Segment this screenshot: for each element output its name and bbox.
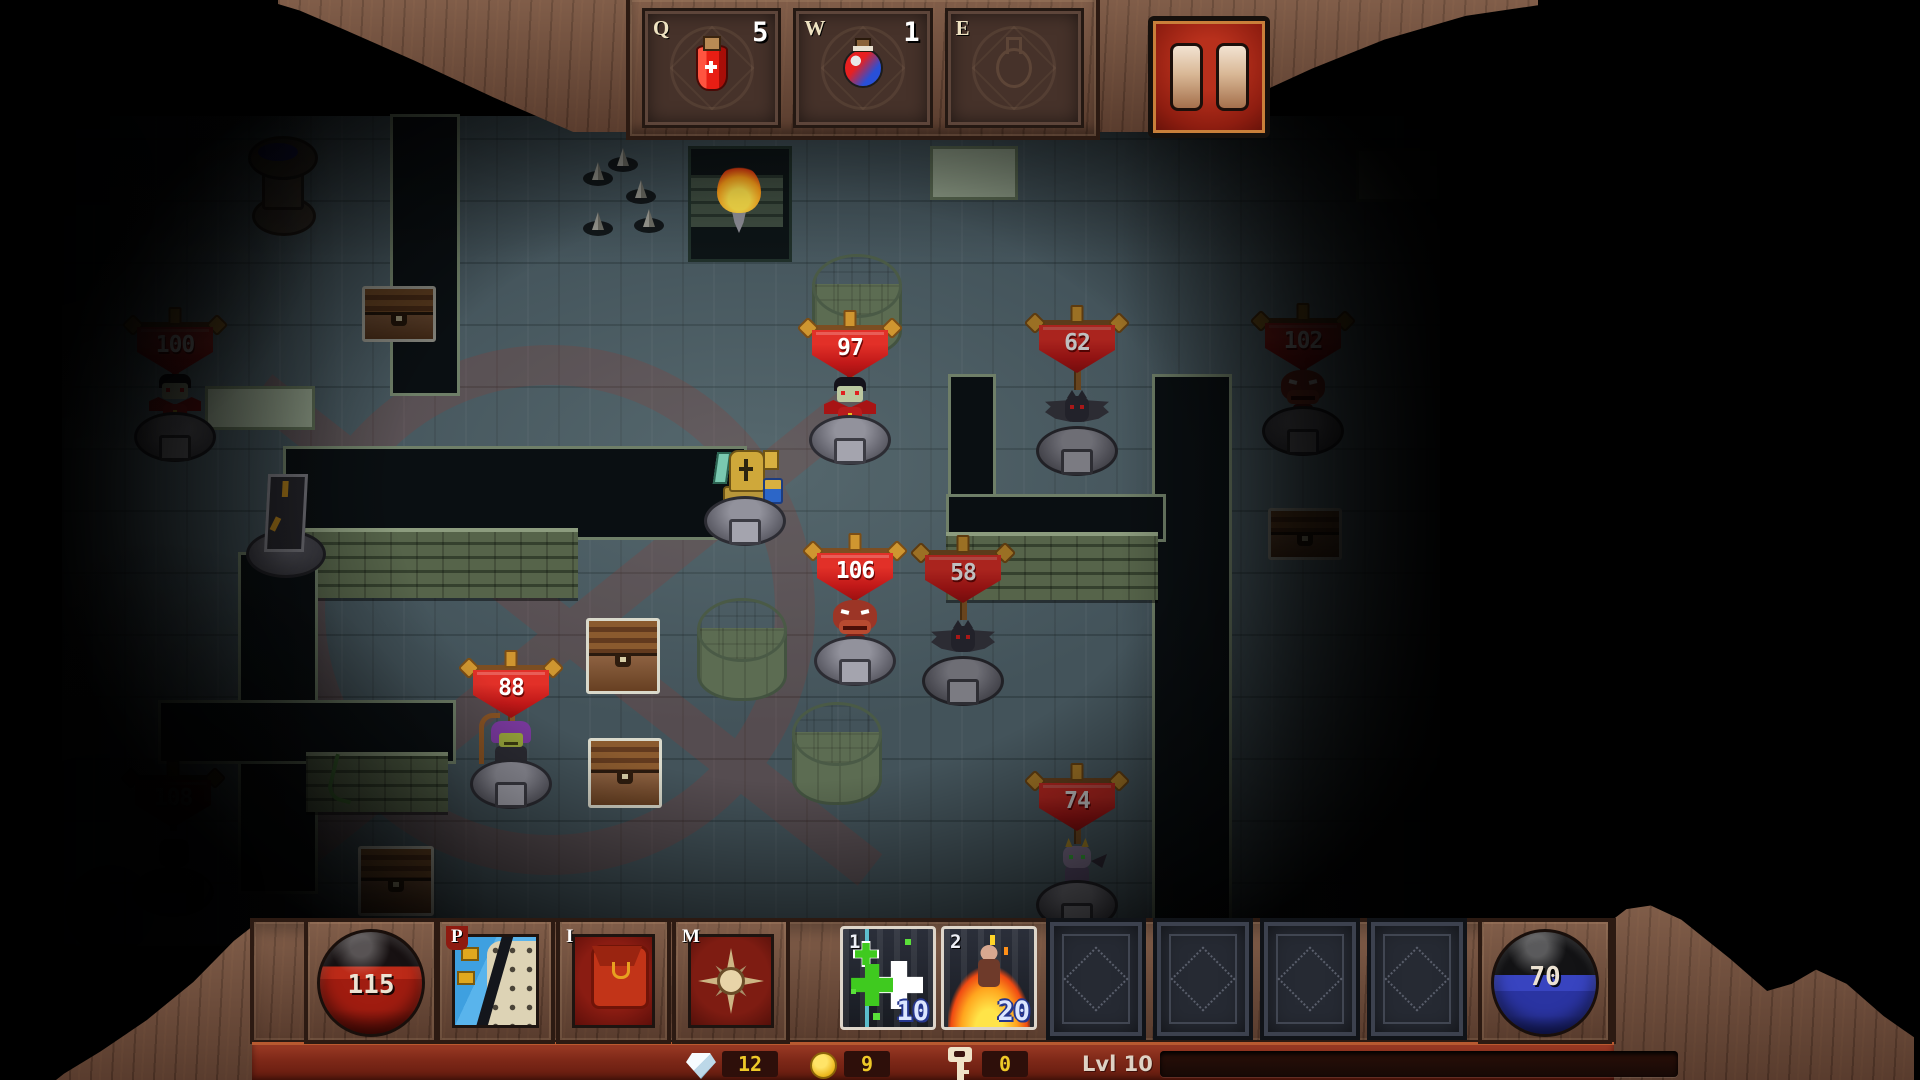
enemy-hp: 97: [812, 335, 888, 361]
hp-banner: 108: [128, 765, 218, 825]
wall-trench: [1152, 374, 1232, 946]
enemy-hp: 58: [925, 560, 1001, 586]
map-button[interactable]: M: [672, 918, 790, 1044]
empty-flask-icon: [996, 48, 1032, 88]
hp-banner: 100: [130, 312, 220, 372]
spike-trap: [634, 207, 664, 233]
compass-icon: [688, 934, 774, 1028]
spike-trap: [583, 210, 613, 236]
enemy-pedestal: [1036, 426, 1118, 476]
enemy-hp: 62: [1039, 330, 1115, 356]
enemy-hp: 106: [817, 558, 893, 584]
hp-banner: 62: [1032, 310, 1122, 370]
mana-value: 70: [1494, 962, 1596, 992]
coin-count: 9: [844, 1051, 890, 1077]
treasure-chest[interactable]: [362, 286, 436, 342]
inventory-button[interactable]: I: [556, 918, 671, 1044]
hp-banner: 74: [1032, 768, 1122, 828]
inventory-bag-icon: [572, 934, 655, 1028]
hotkey-label: 1: [849, 931, 860, 953]
treasure-chest[interactable]: [586, 618, 660, 694]
mana-cost: 20: [997, 996, 1030, 1027]
empty-card-slot[interactable]: [1367, 918, 1467, 1040]
enemy-hp: 108: [135, 785, 211, 811]
health-orb-frame: 115: [304, 918, 438, 1044]
treasure-chest[interactable]: [358, 846, 434, 916]
rainbow-potion-icon: [843, 48, 883, 88]
enemy-hp: 100: [137, 332, 213, 358]
enemy-bat[interactable]: 58: [918, 540, 1008, 706]
enemy-pedestal: [470, 759, 552, 809]
mana-cost: 10: [896, 996, 929, 1027]
enemy-pedestal: [132, 867, 214, 917]
spell-card-immolation[interactable]: 2 20: [941, 926, 1037, 1030]
hp-banner: 106: [810, 538, 900, 598]
enemy-demon[interactable]: 106: [810, 538, 900, 686]
wall-trench: [283, 446, 747, 540]
empty-card-slot[interactable]: [1046, 918, 1146, 1040]
mana-orb: 70: [1491, 929, 1599, 1037]
treasure-chest[interactable]: [1268, 508, 1342, 560]
obelisk: [246, 474, 324, 578]
enemy-hp: 102: [1265, 328, 1341, 354]
wall-cap: [1356, 148, 1442, 202]
resource-strip: 12 9 0 Lvl 10: [252, 1042, 1614, 1080]
item-count: 5: [752, 17, 768, 48]
enemy-pedestal: [809, 415, 891, 465]
hotkey-label: E: [956, 16, 970, 41]
gem-count: 12: [722, 1051, 778, 1077]
spike-trap: [626, 178, 656, 204]
gem-icon: [686, 1053, 716, 1079]
enemy-pedestal: [814, 636, 896, 686]
stone-pillar: [792, 702, 882, 808]
hp-banner: 102: [1258, 308, 1348, 368]
torch-alcove: [688, 146, 792, 262]
coin-icon: [810, 1052, 837, 1079]
hp-banner: 97: [805, 315, 895, 375]
enemy-bat[interactable]: 62: [1032, 310, 1122, 476]
hotkey-label: 2: [950, 931, 961, 953]
enemy-pedestal: [134, 412, 216, 462]
enemy-imp[interactable]: 74: [1032, 768, 1122, 930]
enemy-goblin-shaman[interactable]: 88: [466, 655, 556, 809]
item-count: 1: [903, 17, 919, 48]
spike-trap: [608, 146, 638, 172]
consumable-slot-e[interactable]: E: [945, 8, 1084, 128]
xp-progress-bar: [1160, 1051, 1678, 1077]
hotkey-label: Q: [653, 16, 669, 41]
brick-wall: [286, 528, 578, 598]
spell-card-heal[interactable]: 1 10: [840, 926, 936, 1030]
consumable-slot-q[interactable]: Q 5: [642, 8, 781, 128]
enemy-hidden[interactable]: 108: [128, 765, 218, 917]
fountain: [248, 136, 314, 236]
consumable-slot-w[interactable]: W 1: [793, 8, 932, 128]
health-value: 115: [320, 970, 422, 1000]
player-pedestal: [704, 496, 786, 546]
empty-card-slot[interactable]: [1153, 918, 1253, 1040]
key-count: 0: [982, 1051, 1028, 1077]
enemy-pedestal: [1262, 406, 1344, 456]
enemy-pedestal: [922, 656, 1004, 706]
brick-wall: [306, 752, 448, 812]
enemy-hp: 88: [473, 675, 549, 701]
pause-icon: [1170, 43, 1203, 111]
hotkey-label: W: [804, 16, 825, 41]
health-potion-icon: [696, 45, 728, 91]
enemy-hp: 74: [1039, 788, 1115, 814]
wall-cap: [930, 146, 1018, 200]
pause-button[interactable]: [1148, 16, 1270, 138]
hp-banner: 58: [918, 540, 1008, 600]
mana-orb-frame: 70: [1478, 918, 1612, 1044]
empty-card-slot[interactable]: [1260, 918, 1360, 1040]
pause-icon: [1216, 43, 1249, 111]
player-knight: [700, 452, 790, 546]
consumable-bar: Q 5 W 1 E: [626, 0, 1100, 140]
hotkey-label: P: [446, 926, 468, 950]
enemy-vampire[interactable]: 100: [130, 312, 220, 462]
enemy-vampire[interactable]: 97: [805, 315, 895, 465]
hotkey-label: M: [682, 926, 700, 948]
wall-trench: [390, 114, 460, 396]
enemy-demon[interactable]: 102: [1258, 308, 1348, 456]
game-screen: 100 97 62 102: [0, 0, 1920, 1080]
stone-pillar: [697, 598, 787, 704]
torch-flame-icon: [717, 165, 761, 213]
wall-cap: [205, 386, 315, 430]
health-orb: 115: [317, 929, 425, 1037]
treasure-chest[interactable]: [588, 738, 662, 808]
key-icon: [946, 1047, 976, 1080]
hp-banner: 88: [466, 655, 556, 715]
level-label: Lvl 10: [1082, 1052, 1153, 1076]
character-button[interactable]: P: [436, 918, 555, 1044]
hotkey-label: I: [566, 926, 573, 948]
